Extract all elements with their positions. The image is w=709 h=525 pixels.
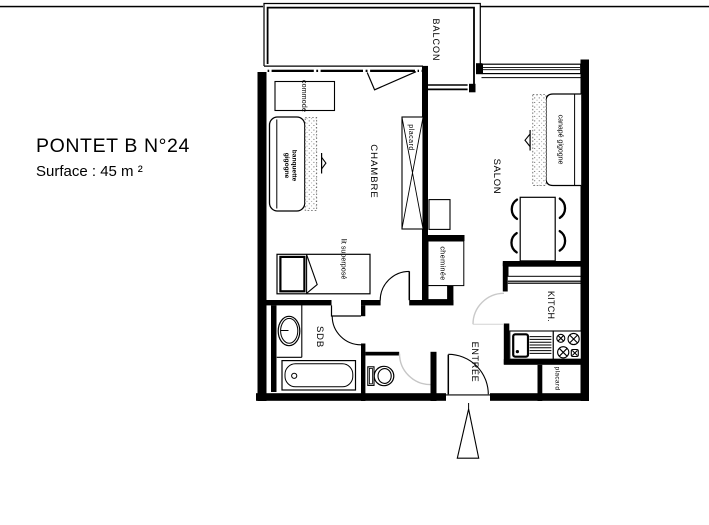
svg-text:commode: commode — [300, 80, 307, 112]
svg-text:PONTET B N°24: PONTET B N°24 — [36, 135, 190, 157]
svg-text:canapé gigogne: canapé gigogne — [556, 115, 563, 165]
svg-text:BALCON: BALCON — [431, 18, 441, 61]
svg-text:placard: placard — [407, 124, 414, 150]
svg-text:lit superposé: lit superposé — [339, 239, 348, 280]
svg-text:banquette: banquette — [290, 150, 297, 182]
svg-text:cheminée: cheminée — [439, 246, 448, 280]
svg-text:CHAMBRE: CHAMBRE — [368, 144, 379, 199]
svg-text:SDB: SDB — [314, 326, 325, 348]
svg-text:ENTRÉE: ENTRÉE — [470, 342, 480, 383]
svg-text:placard: placard — [554, 367, 561, 391]
svg-text:Surface : 45 m ²: Surface : 45 m ² — [36, 163, 143, 180]
svg-text:SALON: SALON — [491, 159, 502, 195]
svg-text:gigogne: gigogne — [283, 153, 290, 179]
svg-text:KITCH.: KITCH. — [546, 291, 556, 322]
